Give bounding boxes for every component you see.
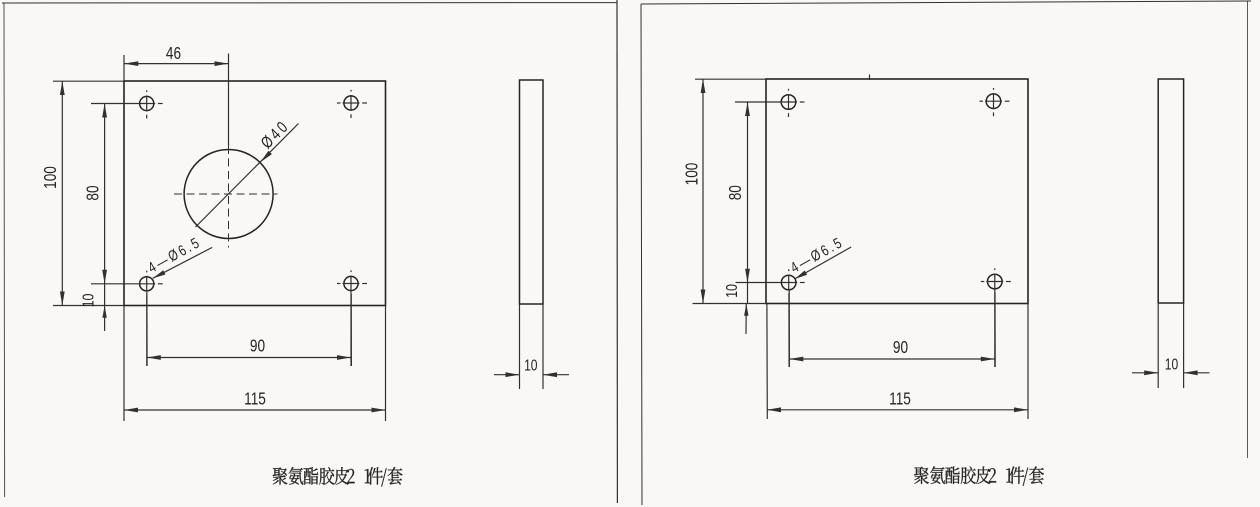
svg-text:80: 80 (727, 185, 746, 200)
svg-text:10: 10 (524, 356, 538, 374)
svg-text:115: 115 (244, 390, 266, 409)
svg-text:90: 90 (250, 337, 265, 356)
svg-text:80: 80 (84, 185, 103, 200)
svg-text:46: 46 (166, 45, 181, 64)
svg-text:10: 10 (724, 284, 742, 298)
svg-text:10: 10 (80, 294, 98, 308)
svg-text:100: 100 (683, 162, 702, 185)
svg-text:100: 100 (42, 166, 61, 189)
svg-text:115: 115 (889, 390, 911, 409)
svg-text:90: 90 (893, 339, 908, 358)
svg-text:10: 10 (1165, 355, 1179, 373)
